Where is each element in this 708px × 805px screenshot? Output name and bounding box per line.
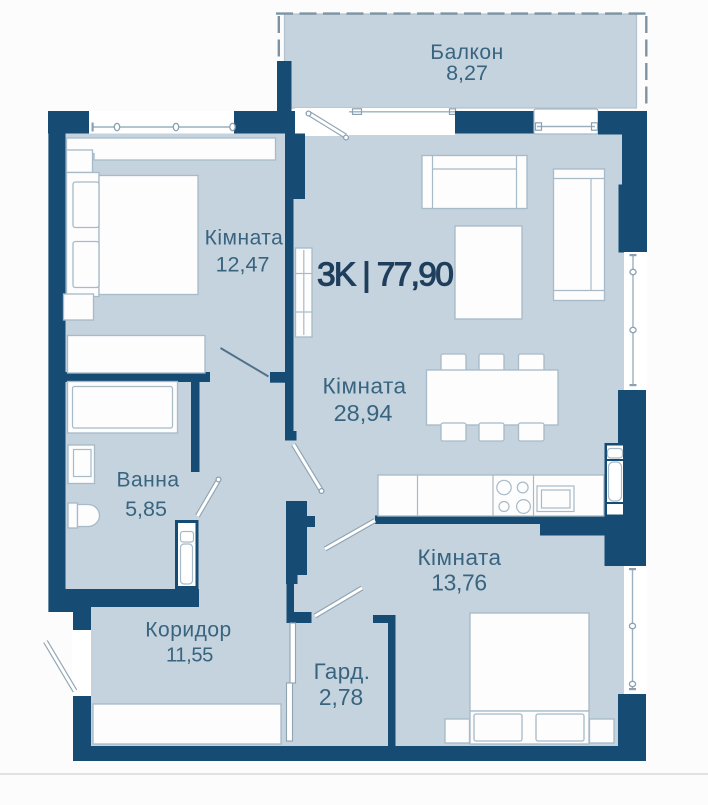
svg-text:5,85: 5,85 xyxy=(125,497,167,521)
svg-text:Кімната: Кімната xyxy=(322,374,406,399)
svg-text:12,47: 12,47 xyxy=(216,252,270,276)
svg-text:2,78: 2,78 xyxy=(319,684,363,710)
svg-text:11,55: 11,55 xyxy=(166,645,213,667)
svg-text:Коридор: Коридор xyxy=(145,619,231,642)
svg-text:28,94: 28,94 xyxy=(334,400,393,426)
svg-text:13,76: 13,76 xyxy=(431,570,487,596)
svg-text:Гард.: Гард. xyxy=(314,659,371,684)
svg-text:3K | 77,90: 3K | 77,90 xyxy=(317,257,453,294)
svg-text:Кімната: Кімната xyxy=(417,545,501,570)
svg-text:Ванна: Ванна xyxy=(116,469,179,492)
svg-text:8,27: 8,27 xyxy=(446,61,488,85)
svg-text:Кімната: Кімната xyxy=(205,226,284,249)
